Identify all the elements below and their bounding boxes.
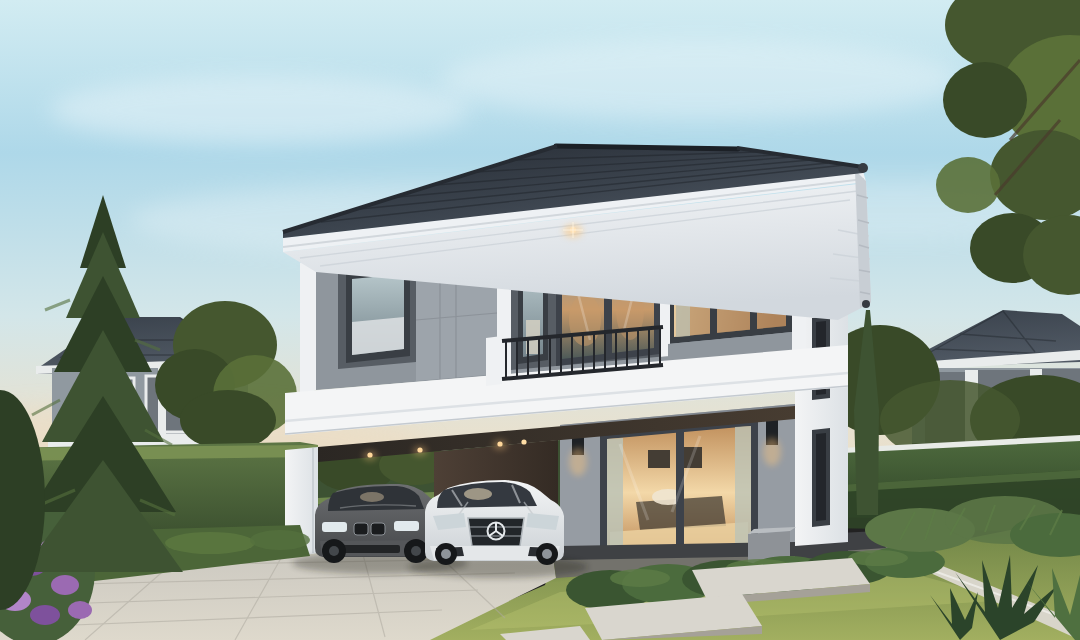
flower-cluster [51, 575, 79, 595]
sliding-glass-door [600, 418, 758, 554]
sconce-glow [763, 438, 781, 466]
shrub-highlight [610, 569, 670, 587]
bmw-kidney-grille [371, 523, 385, 535]
mercedes-headlight-left [433, 513, 466, 530]
sconce-glow [569, 448, 587, 476]
slit-window-glass [816, 433, 826, 521]
mercedes-interior-seat [464, 488, 492, 500]
door-curtain-right [735, 426, 751, 544]
groundcover-tuft [165, 532, 255, 554]
bmw-wheel-hub [329, 546, 339, 556]
interior-picture-frame [648, 450, 670, 468]
bmw-headlight-right [394, 521, 419, 531]
shrub-highlight [848, 550, 908, 566]
downlight-glow [493, 440, 507, 450]
mercedes-wheel-hub [542, 549, 552, 559]
ridge-cap [556, 146, 738, 149]
window-lower-panel [352, 317, 404, 355]
mercedes-wheel-hub [441, 549, 451, 559]
tree-canopy [180, 390, 276, 450]
gutter-end-cap [858, 163, 868, 173]
cloud [50, 76, 470, 144]
corner-trim-left [300, 257, 316, 396]
downlight-glow [363, 451, 377, 461]
tree-canopy [936, 157, 1000, 213]
architectural-rendering [0, 0, 1080, 640]
door-curtain-left [607, 438, 623, 547]
bmw-interior-seat [360, 492, 384, 502]
scene-canvas [0, 0, 1080, 640]
bmw-kidney-grille [354, 523, 368, 535]
balcony-end-pillar [486, 336, 502, 386]
bmw-wheel-hub [411, 546, 421, 556]
mercedes-headlight-right [526, 513, 559, 530]
car-bmw-grey [315, 484, 444, 563]
bmw-intake [340, 545, 400, 553]
flower-cluster [30, 605, 60, 625]
bmw-headlight-left [322, 522, 347, 532]
groundcover-tuft [250, 530, 310, 550]
flower-cluster [68, 601, 92, 619]
downlight-glow [413, 446, 427, 456]
cloud [440, 40, 960, 120]
tree-canopy [943, 62, 1027, 138]
downlight [521, 439, 526, 444]
gutter-end-cap [862, 300, 870, 308]
